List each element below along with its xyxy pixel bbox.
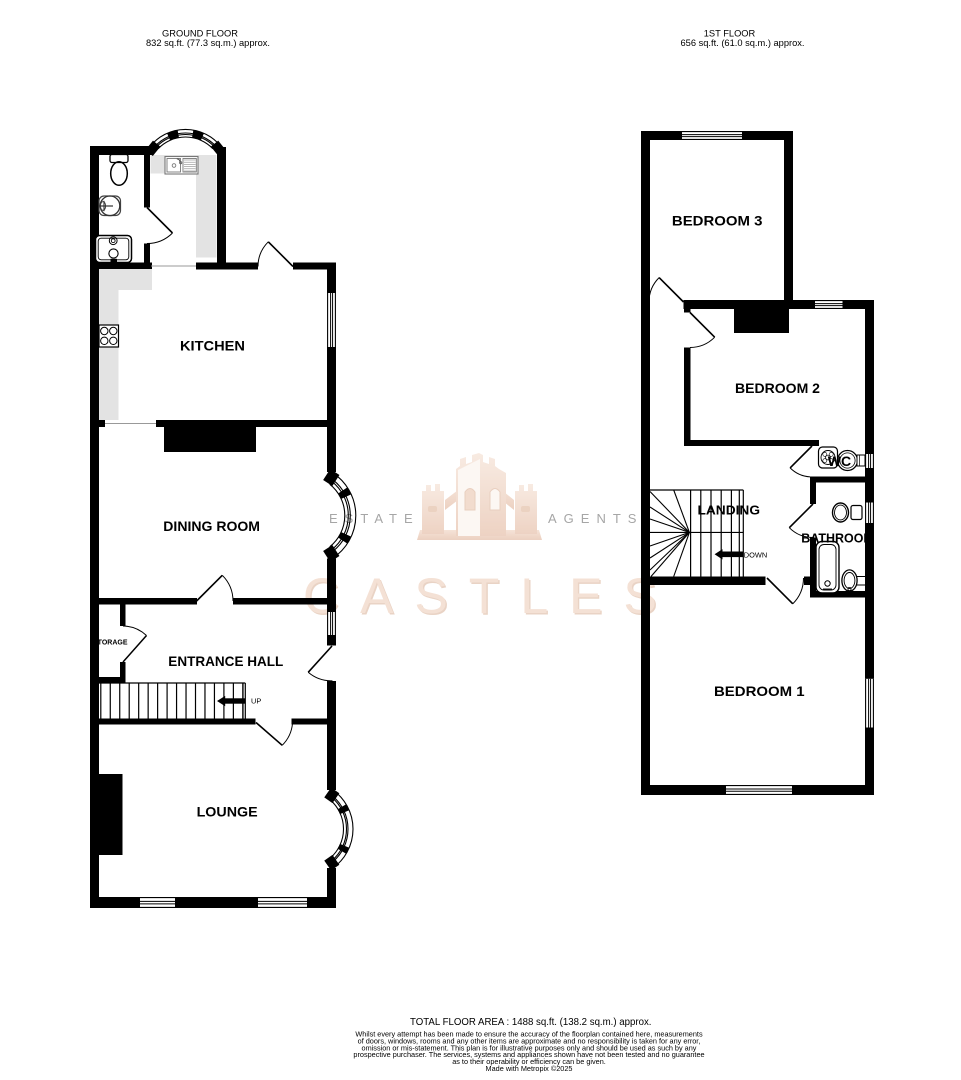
svg-text:Made with Metropix ©2025: Made with Metropix ©2025 bbox=[486, 1064, 573, 1073]
svg-text:ESTATE: ESTATE bbox=[329, 511, 420, 526]
svg-text:BEDROOM 2: BEDROOM 2 bbox=[735, 380, 820, 396]
svg-text:UP: UP bbox=[251, 697, 261, 706]
svg-text:832 sq.ft. (77.3 sq.m.) approx: 832 sq.ft. (77.3 sq.m.) approx. bbox=[146, 38, 270, 48]
svg-text:DOWN: DOWN bbox=[744, 550, 767, 559]
svg-text:LOUNGE: LOUNGE bbox=[197, 804, 258, 820]
svg-text:BEDROOM 3: BEDROOM 3 bbox=[672, 213, 763, 229]
svg-text:ENTRANCE HALL: ENTRANCE HALL bbox=[168, 653, 283, 669]
svg-text:CASTLES: CASTLES bbox=[303, 568, 678, 624]
svg-text:KITCHEN: KITCHEN bbox=[180, 338, 245, 354]
svg-text:656 sq.ft. (61.0 sq.m.) approx: 656 sq.ft. (61.0 sq.m.) approx. bbox=[680, 38, 804, 48]
svg-text:AGENTS: AGENTS bbox=[548, 511, 643, 526]
svg-text:BEDROOM 1: BEDROOM 1 bbox=[714, 683, 805, 699]
svg-text:1ST FLOOR: 1ST FLOOR bbox=[704, 29, 756, 39]
svg-text:LANDING: LANDING bbox=[698, 503, 761, 518]
svg-text:TOTAL FLOOR AREA : 1488 sq.ft.: TOTAL FLOOR AREA : 1488 sq.ft. (138.2 sq… bbox=[410, 1017, 652, 1028]
svg-text:WC: WC bbox=[828, 453, 851, 469]
svg-text:STORAGE: STORAGE bbox=[93, 640, 128, 647]
svg-text:GROUND FLOOR: GROUND FLOOR bbox=[162, 29, 238, 39]
svg-text:BATHROOM: BATHROOM bbox=[801, 531, 874, 546]
svg-text:DINING ROOM: DINING ROOM bbox=[163, 518, 260, 534]
